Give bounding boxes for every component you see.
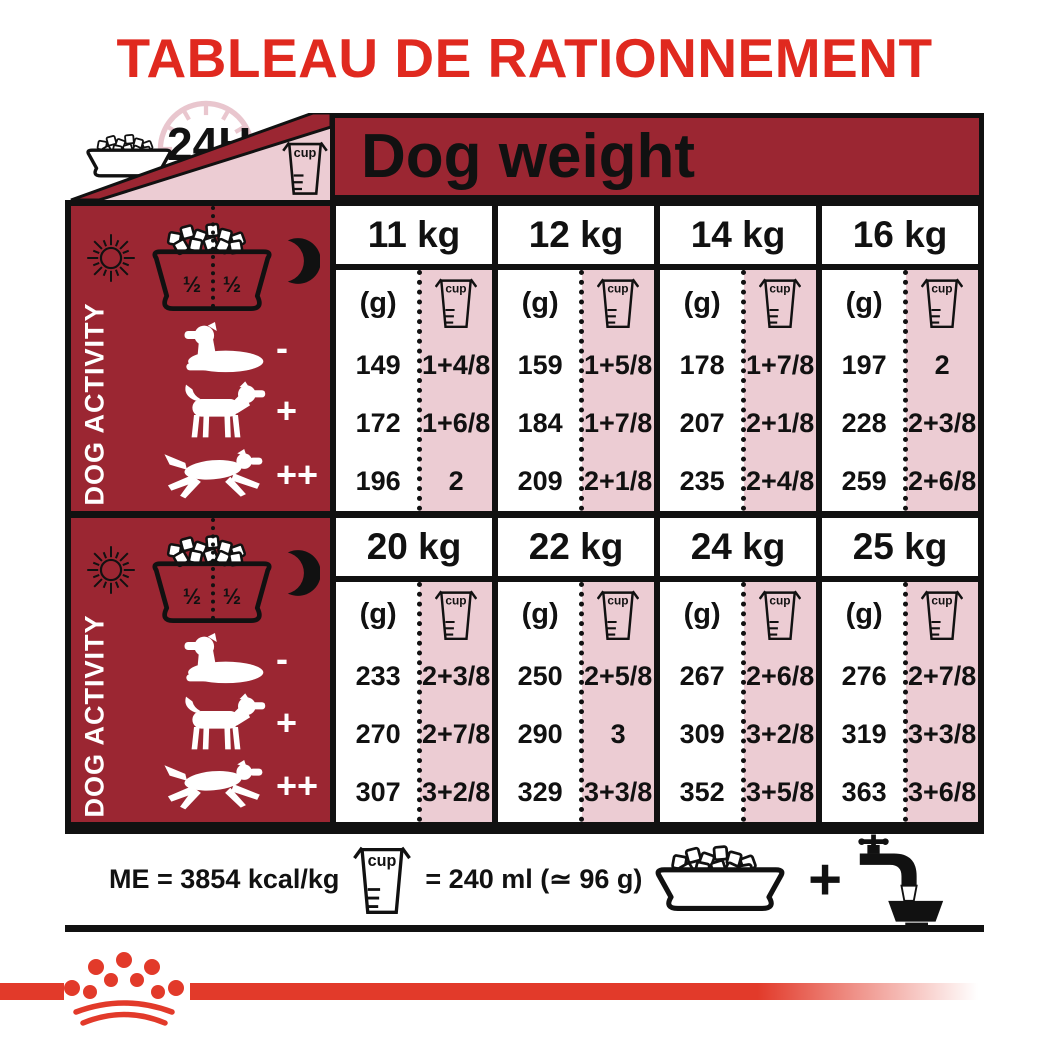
grams-value: 149 <box>336 336 420 394</box>
ration-grid-2: 20 kg 22 kg 24 kg 25 kg (g) cup 2332+3/8… <box>336 518 978 823</box>
cup-icon: cup <box>435 587 477 643</box>
dotted-divider <box>903 270 908 511</box>
activity-row-high: ++ <box>133 443 326 507</box>
grams-value: 309 <box>660 706 744 764</box>
ration-grid-1: 11 kg 12 kg 14 kg 16 kg (g) cup 1491+4/8… <box>336 206 978 511</box>
cups-value: 1+6/8 <box>420 394 492 452</box>
grams-unit-label: (g) <box>498 270 582 336</box>
weight-header: 20 kg <box>336 518 498 576</box>
svg-text:cup: cup <box>446 282 467 296</box>
grams-value: 363 <box>822 764 906 822</box>
ration-table-page: TABLEAU DE RATIONNEMENT 24H <box>0 0 1049 1049</box>
royal-canin-crown-logo <box>56 950 192 1028</box>
moon-icon <box>276 544 320 602</box>
standing-dog-icon <box>178 380 266 442</box>
sun-icon <box>79 226 143 290</box>
weight-header: 16 kg <box>822 206 978 264</box>
weight-header: 14 kg <box>660 206 822 264</box>
grams-unit-label: (g) <box>822 582 906 648</box>
cups-value: 2+7/8 <box>906 648 978 706</box>
running-dog-icon <box>160 760 266 812</box>
svg-text:cup: cup <box>446 593 467 607</box>
weight-column: (g) cup 1591+5/8 1841+7/8 2092+1/8 <box>498 270 660 511</box>
cup-icon: cup <box>921 587 963 643</box>
grams-value: 319 <box>822 706 906 764</box>
dog-activity-label: DOG ACTIVITY <box>77 614 113 819</box>
plus-sign: + <box>808 851 842 909</box>
svg-text:½: ½ <box>223 272 241 297</box>
footer-info-bar: ME = 3854 kcal/kg cup = 240 ml (≃ 96 g) <box>65 828 984 932</box>
cups-value: 3+3/8 <box>582 764 654 822</box>
grams-unit-label: (g) <box>336 270 420 336</box>
dog-weight-header: Dog weight <box>330 113 984 200</box>
ration-values: (g) cup 2332+3/8 2702+7/8 3073+2/8 (g) c… <box>336 582 978 823</box>
svg-text:cup: cup <box>294 145 317 160</box>
cups-value: 3+6/8 <box>906 764 978 822</box>
cup-icon: cup <box>597 587 639 643</box>
brand-stripe-left <box>0 983 64 1000</box>
grams-value: 270 <box>336 706 420 764</box>
weight-column: (g) cup 1972 2282+3/8 2592+6/8 <box>822 270 978 511</box>
dog-activity-panel: ½ ½ DOG ACTIVITY - <box>71 518 336 823</box>
cup-icon: cup <box>597 275 639 331</box>
cups-value: 2+1/8 <box>744 394 816 452</box>
svg-text:cup: cup <box>932 282 953 296</box>
grams-unit-label: (g) <box>660 270 744 336</box>
grams-value: 184 <box>498 394 582 452</box>
metabolizable-energy-label: ME = 3854 kcal/kg <box>109 864 339 895</box>
dotted-divider <box>579 270 584 511</box>
weight-column: (g) cup 2762+7/8 3193+3/8 3633+6/8 <box>822 582 978 823</box>
grams-value: 276 <box>822 648 906 706</box>
ration-values: (g) cup 1491+4/8 1721+6/8 1962 (g) cup 1… <box>336 270 978 511</box>
cup-volume-label: = 240 ml (≃ 96 g) <box>425 864 642 895</box>
svg-text:½: ½ <box>183 583 201 608</box>
cups-value: 2 <box>420 452 492 510</box>
svg-text:cup: cup <box>770 282 791 296</box>
dotted-divider <box>417 582 422 823</box>
dog-activity-label: DOG ACTIVITY <box>77 302 113 507</box>
grams-value: 159 <box>498 336 582 394</box>
activity-marker-low: - <box>276 641 324 677</box>
cups-value: 2+3/8 <box>420 648 492 706</box>
cups-value: 1+7/8 <box>582 394 654 452</box>
cup-icon: cup <box>921 275 963 331</box>
half-divider-dotted-line <box>211 206 215 308</box>
grams-value: 228 <box>822 394 906 452</box>
grams-value: 352 <box>660 764 744 822</box>
weight-header: 11 kg <box>336 206 498 264</box>
cups-value: 1+7/8 <box>744 336 816 394</box>
cups-value: 3+2/8 <box>744 706 816 764</box>
sun-icon <box>79 538 143 602</box>
cups-value: 2+5/8 <box>582 648 654 706</box>
cup-icon: cup <box>353 842 411 918</box>
grams-unit-label: (g) <box>660 582 744 648</box>
cups-value: 2 <box>906 336 978 394</box>
weight-header: 22 kg <box>498 518 660 576</box>
half-divider-dotted-line <box>211 518 215 620</box>
activity-row-low: - <box>133 628 326 692</box>
activity-row-low: - <box>133 316 326 380</box>
cups-value: 2+4/8 <box>744 452 816 510</box>
cups-value: 3+2/8 <box>420 764 492 822</box>
cups-value: 2+1/8 <box>582 452 654 510</box>
cups-value: 2+6/8 <box>906 452 978 510</box>
grams-value: 290 <box>498 706 582 764</box>
activity-marker-low: - <box>276 330 324 366</box>
grams-value: 197 <box>822 336 906 394</box>
moon-icon <box>276 232 320 290</box>
activity-row-medium: + <box>133 691 326 755</box>
food-plus-water-group: + <box>646 834 946 926</box>
grams-value: 233 <box>336 648 420 706</box>
ration-table: ½ ½ DOG ACTIVITY - <box>65 200 984 828</box>
cup-icon: cup <box>435 275 477 331</box>
cups-value: 2+7/8 <box>420 706 492 764</box>
grams-value: 172 <box>336 394 420 452</box>
cups-value: 2+6/8 <box>744 648 816 706</box>
weight-header-row: 20 kg 22 kg 24 kg 25 kg <box>336 518 978 582</box>
cups-value: 2+3/8 <box>906 394 978 452</box>
resting-dog-icon <box>172 633 266 685</box>
svg-text:cup: cup <box>608 593 629 607</box>
svg-text:cup: cup <box>368 851 397 869</box>
page-title: TABLEAU DE RATIONNEMENT <box>0 26 1049 90</box>
cups-value: 3+3/8 <box>906 706 978 764</box>
activity-row-high: ++ <box>133 755 326 819</box>
brand-stripe-right <box>190 983 978 1000</box>
weight-column: (g) cup 1491+4/8 1721+6/8 1962 <box>336 270 498 511</box>
cup-icon: cup <box>759 587 801 643</box>
svg-text:½: ½ <box>183 272 201 297</box>
table-half-1: ½ ½ DOG ACTIVITY - <box>71 206 978 511</box>
activity-marker-medium: + <box>276 705 324 741</box>
activity-row-medium: + <box>133 380 326 444</box>
svg-text:cup: cup <box>932 593 953 607</box>
activity-marker-high: ++ <box>276 768 324 804</box>
weight-column: (g) cup 2332+3/8 2702+7/8 3073+2/8 <box>336 582 498 823</box>
dog-activity-panel: ½ ½ DOG ACTIVITY - <box>71 206 336 511</box>
dog-activity-rows: - + <box>133 628 326 819</box>
running-dog-icon <box>160 449 266 501</box>
weight-column: (g) cup 2672+6/8 3093+2/8 3523+5/8 <box>660 582 822 823</box>
grams-value: 207 <box>660 394 744 452</box>
weight-column: (g) cup 1781+7/8 2072+1/8 2352+4/8 <box>660 270 822 511</box>
food-bowl-icon <box>646 838 794 922</box>
dotted-divider <box>903 582 908 823</box>
resting-dog-icon <box>172 322 266 374</box>
grams-unit-label: (g) <box>336 582 420 648</box>
cup-icon: cup <box>282 138 328 198</box>
dotted-divider <box>741 270 746 511</box>
cups-value: 1+4/8 <box>420 336 492 394</box>
weight-header-row: 11 kg 12 kg 14 kg 16 kg <box>336 206 978 270</box>
cups-value: 3 <box>582 706 654 764</box>
grams-value: 235 <box>660 452 744 510</box>
svg-text:cup: cup <box>770 593 791 607</box>
weight-header: 12 kg <box>498 206 660 264</box>
activity-marker-high: ++ <box>276 457 324 493</box>
dotted-divider <box>579 582 584 823</box>
grams-value: 329 <box>498 764 582 822</box>
grams-value: 250 <box>498 648 582 706</box>
dog-activity-rows: - + <box>133 316 326 507</box>
grams-value: 209 <box>498 452 582 510</box>
grams-value: 259 <box>822 452 906 510</box>
grams-value: 267 <box>660 648 744 706</box>
weight-header: 25 kg <box>822 518 978 576</box>
grams-value: 307 <box>336 764 420 822</box>
activity-marker-medium: + <box>276 393 324 429</box>
cups-value: 1+5/8 <box>582 336 654 394</box>
standing-dog-icon <box>178 692 266 754</box>
cups-value: 3+5/8 <box>744 764 816 822</box>
weight-header: 24 kg <box>660 518 822 576</box>
cup-icon: cup <box>759 275 801 331</box>
water-tap-icon <box>856 834 946 926</box>
grams-unit-label: (g) <box>822 270 906 336</box>
grams-value: 196 <box>336 452 420 510</box>
cup-equivalence-group: ME = 3854 kcal/kg cup = 240 ml (≃ 96 g) <box>109 842 642 918</box>
svg-text:cup: cup <box>608 282 629 296</box>
dotted-divider <box>741 582 746 823</box>
grams-value: 178 <box>660 336 744 394</box>
dotted-divider <box>417 270 422 511</box>
table-half-2: ½ ½ DOG ACTIVITY - <box>71 511 978 823</box>
grams-unit-label: (g) <box>498 582 582 648</box>
svg-text:½: ½ <box>223 583 241 608</box>
weight-column: (g) cup 2502+5/8 2903 3293+3/8 <box>498 582 660 823</box>
